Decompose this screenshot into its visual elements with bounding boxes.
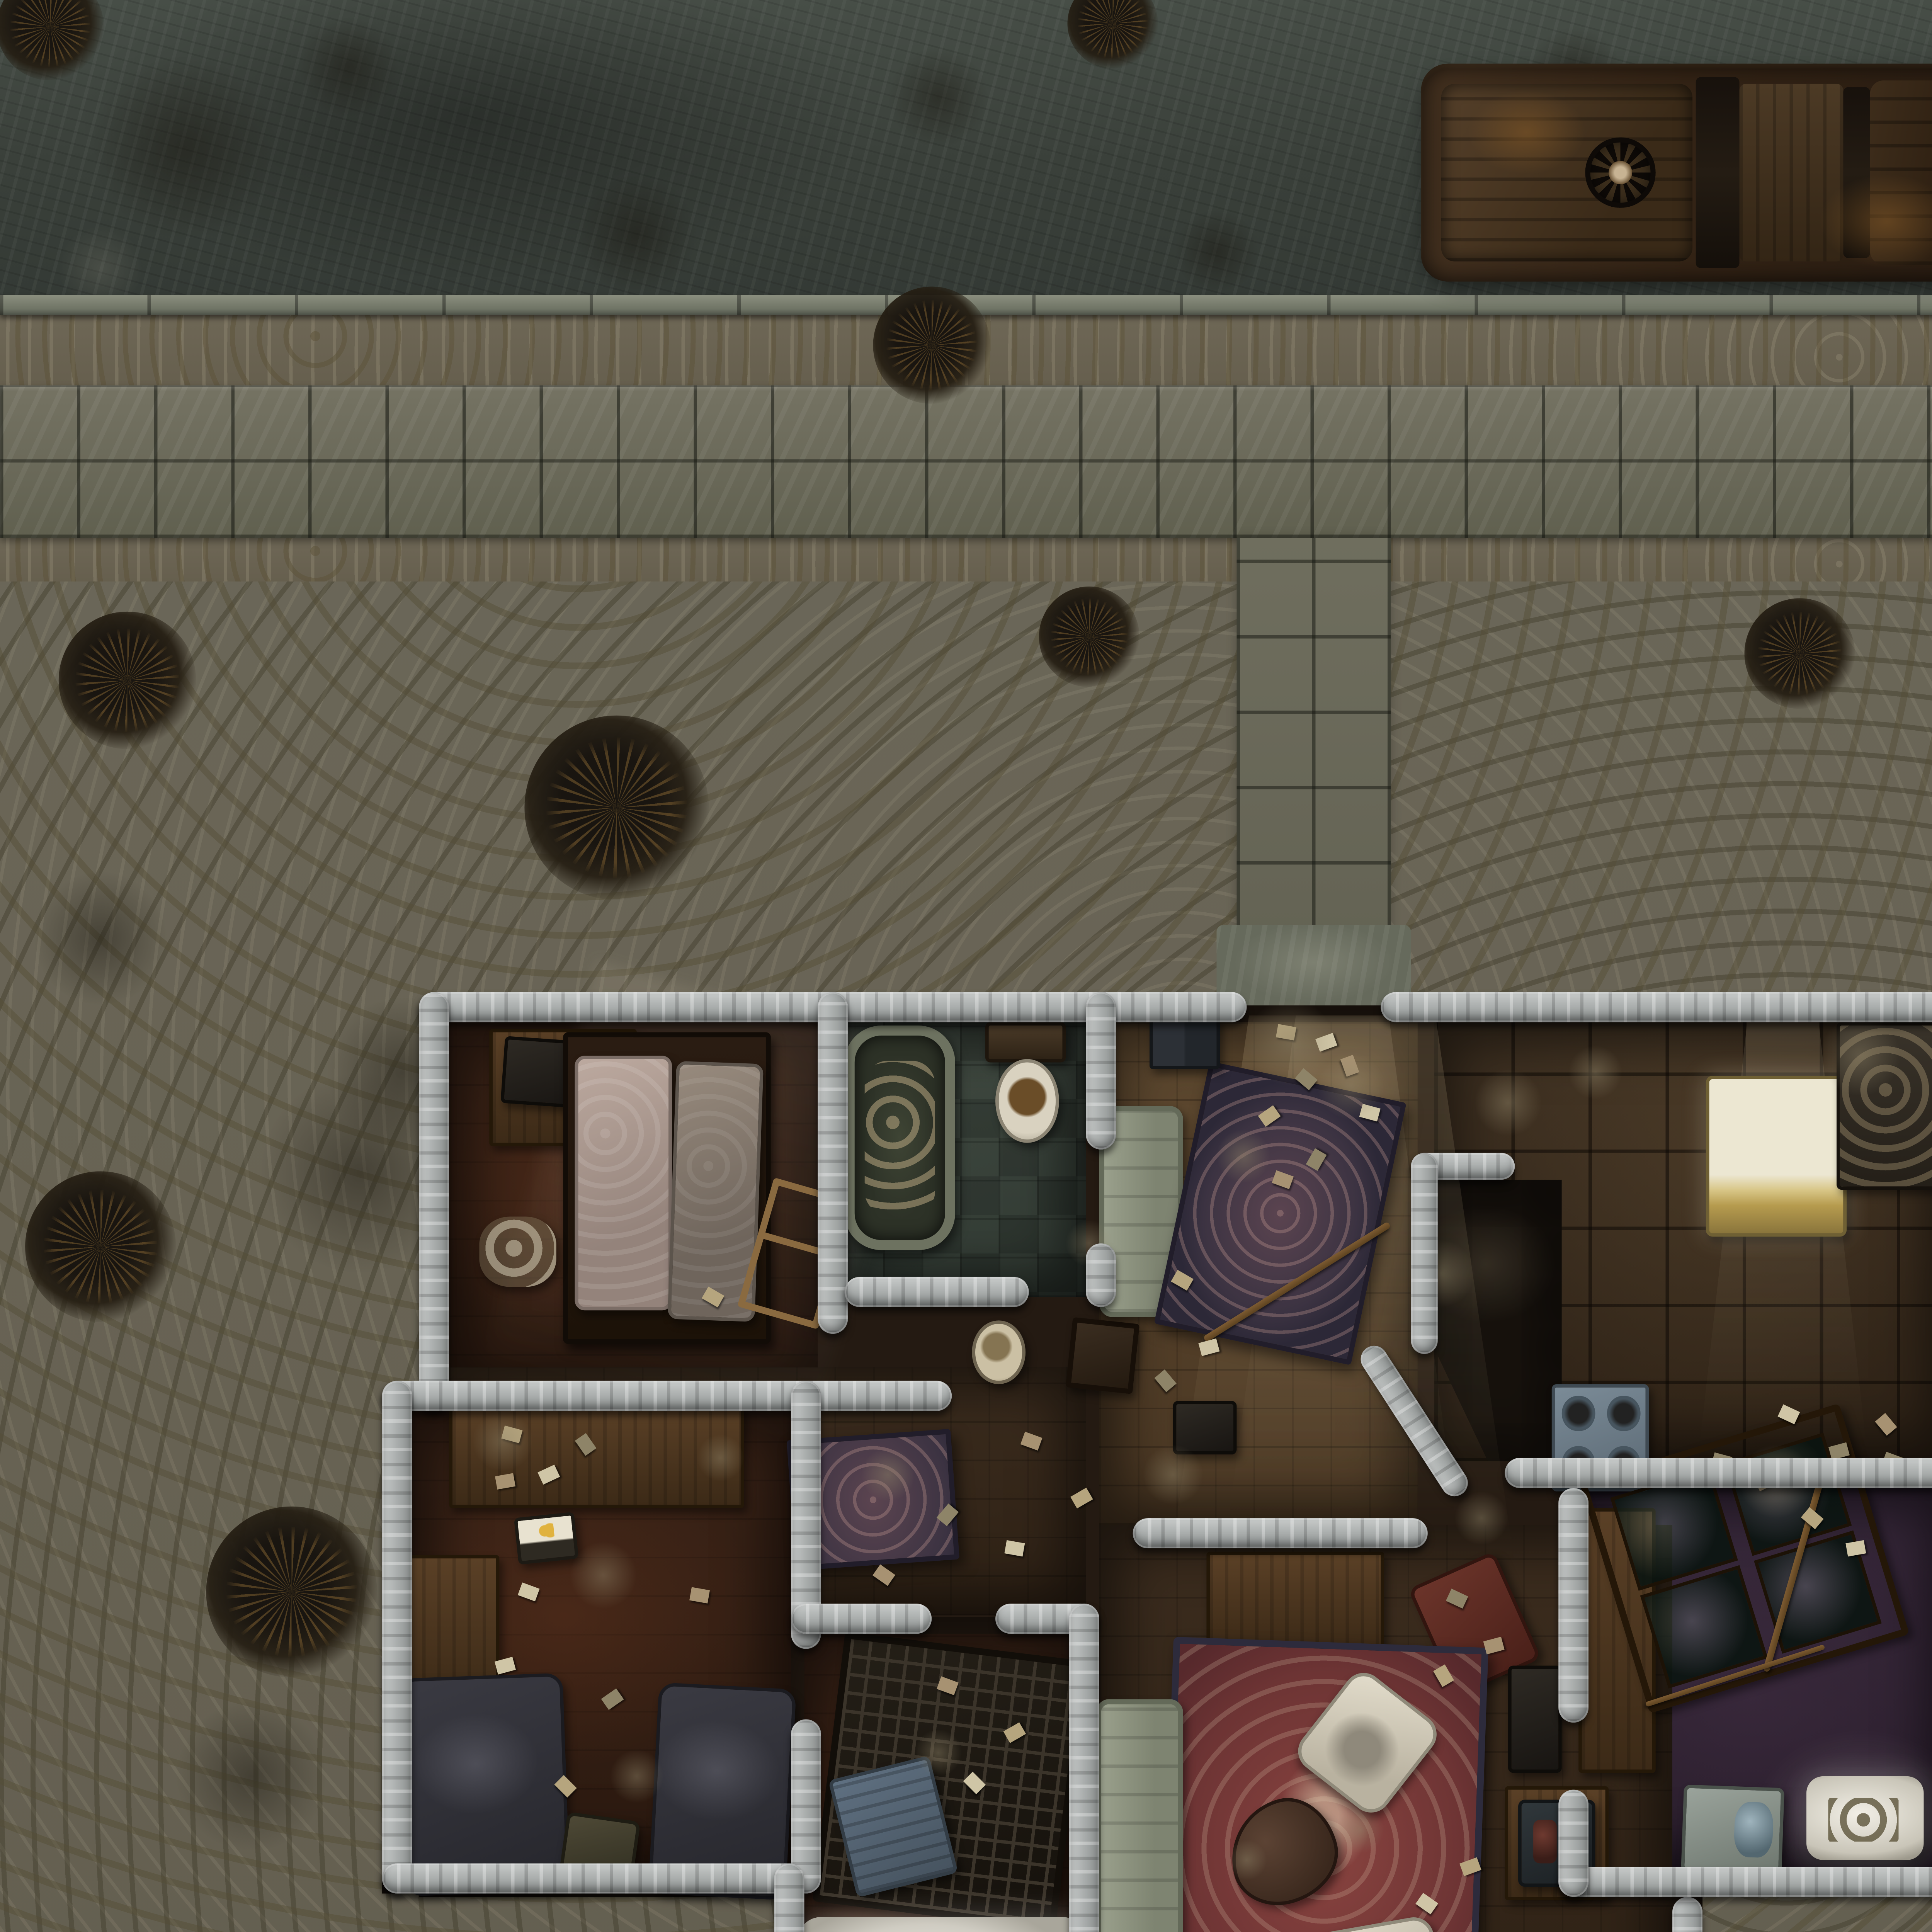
- shrub: [25, 1171, 176, 1322]
- debris-pile: [861, 1448, 915, 1502]
- debris-pile: [697, 1434, 744, 1481]
- shrub: [1039, 587, 1139, 687]
- wall-segment: [1558, 1790, 1588, 1897]
- toilet-top-left: [995, 1059, 1059, 1143]
- car-rust-patch: [1468, 90, 1585, 174]
- debris-pile: [1143, 1444, 1203, 1505]
- shrub: [206, 1507, 377, 1677]
- gravel-verge-lower: [0, 538, 1932, 582]
- living-couch: [1096, 1699, 1183, 1932]
- shrub: [1745, 598, 1855, 709]
- bed-mattress-lit: [575, 1056, 672, 1310]
- debris-pile: [1568, 1046, 1622, 1099]
- wall-segment: [382, 1381, 412, 1893]
- wall-segment: [1133, 1518, 1428, 1548]
- wall-segment: [1558, 1488, 1588, 1723]
- white-crib-with-junk: [1806, 1776, 1924, 1860]
- wall-segment: [1672, 1897, 1702, 1932]
- road-stain: [298, 17, 399, 117]
- yard-stain: [176, 1701, 327, 1852]
- wall-segment: [1381, 992, 1932, 1022]
- sidewalk-slabs: [0, 385, 1932, 538]
- debris-pile: [1454, 1492, 1508, 1545]
- bathtub-top-left: [845, 1026, 955, 1250]
- burnt-mattress: [398, 1673, 570, 1896]
- road-stain: [577, 174, 697, 295]
- road-stain: [888, 47, 988, 147]
- shrub: [59, 612, 196, 749]
- road-stain: [92, 55, 277, 240]
- wall-segment: [1086, 992, 1116, 1150]
- dark-case: [1508, 1666, 1562, 1773]
- debris-pile: [473, 1411, 533, 1471]
- fallen-picture-frame: [1066, 1317, 1140, 1394]
- debris-pile: [1337, 1806, 1384, 1853]
- old-tv-set: [1681, 1784, 1784, 1875]
- wall-segment: [1558, 1867, 1932, 1897]
- wall-segment: [791, 1604, 932, 1634]
- battlemap-stage: [0, 0, 1932, 1932]
- wall-segment: [818, 992, 848, 1334]
- fallen-wash-basin: [972, 1320, 1026, 1384]
- wrecked-car: [1418, 57, 1932, 291]
- debris-pile: [1226, 1840, 1267, 1880]
- wall-segment: [1411, 1153, 1438, 1354]
- debris-pile: [1475, 1069, 1541, 1136]
- road-stain: [1175, 209, 1259, 293]
- wall-segment: [774, 1863, 804, 1932]
- car-fan-hub: [1609, 161, 1632, 184]
- yard-stain: [34, 871, 168, 1005]
- radio-cassette: [514, 1512, 579, 1565]
- paver-path-to-door: [1236, 538, 1391, 940]
- refrigerator: [1706, 1076, 1847, 1236]
- wall-segment: [382, 1381, 952, 1411]
- wall-segment: [419, 992, 449, 1411]
- paper-pile: [479, 1216, 556, 1287]
- dropped-books: [1150, 1015, 1220, 1069]
- debris-pile: [570, 1542, 636, 1609]
- wall-segment: [382, 1863, 804, 1893]
- debris-pile: [1820, 1015, 1900, 1096]
- car-windshield: [1696, 77, 1740, 268]
- wall-segment: [1069, 1604, 1099, 1932]
- debris-pile: [1216, 1129, 1270, 1183]
- wall-segment: [1505, 1458, 1932, 1488]
- shrub: [524, 716, 709, 900]
- living-sideboard: [1206, 1552, 1384, 1649]
- battlemap-viewport: [0, 0, 1932, 1932]
- debris-pile: [1317, 1052, 1384, 1119]
- shrub: [873, 287, 990, 404]
- debris-pile: [610, 1750, 664, 1803]
- white-mattress: [798, 1917, 1086, 1932]
- wall-segment: [1086, 1243, 1116, 1307]
- toilet-tank: [985, 1022, 1066, 1062]
- debris-pile: [915, 1729, 962, 1776]
- wall-segment: [845, 1277, 1029, 1307]
